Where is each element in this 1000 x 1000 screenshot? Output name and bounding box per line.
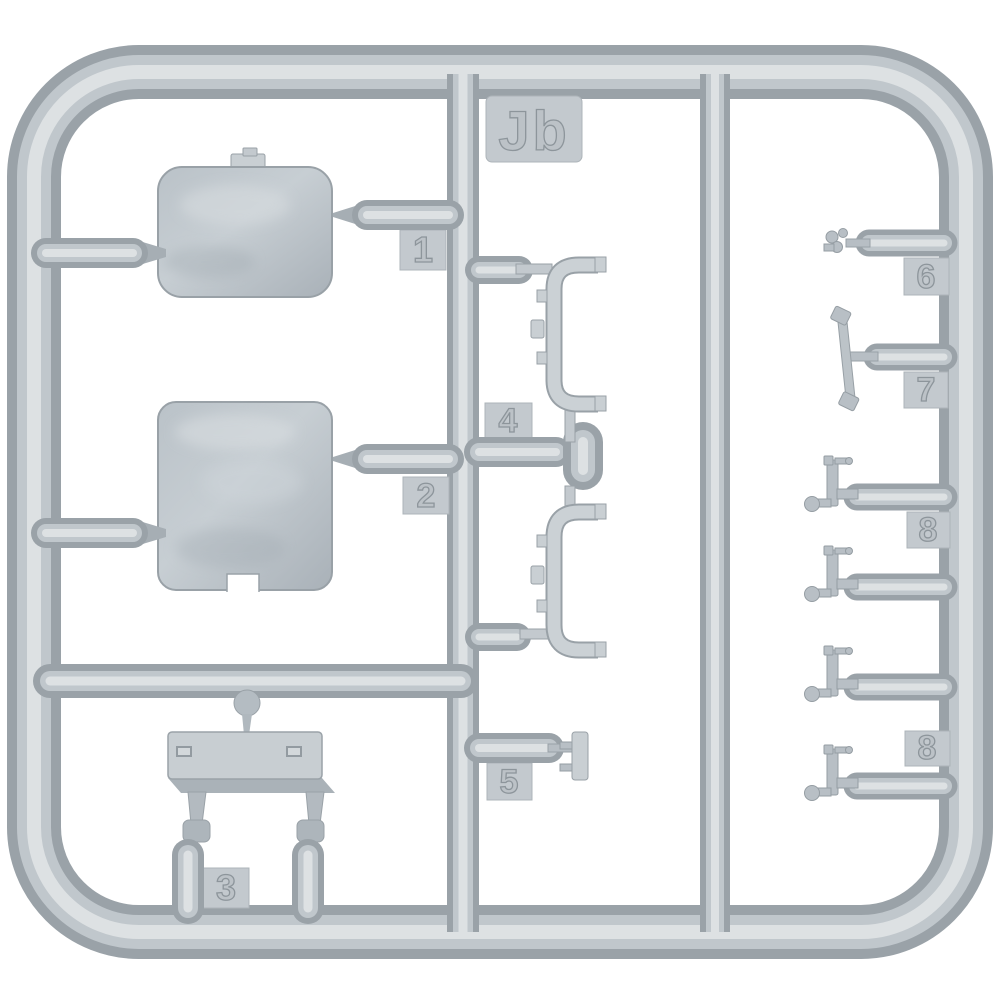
linkage-clevis	[830, 306, 851, 326]
tag-label: 5	[500, 763, 519, 801]
bracket-slot-inner	[178, 748, 190, 755]
fitting-foot	[824, 244, 834, 251]
part-tag-8b: 8	[905, 729, 950, 767]
bracket-nub	[537, 290, 547, 302]
c-bracket-upper	[531, 257, 606, 411]
tag-label: 7	[917, 371, 936, 409]
tag-label: 3	[216, 867, 236, 908]
tank-shadow	[165, 246, 255, 278]
tag-label: 8	[918, 729, 937, 767]
tank-notch	[227, 574, 259, 593]
part-6-fitting	[824, 229, 944, 253]
part-tag-3: 3	[203, 867, 249, 908]
part-tag-6: 6	[904, 258, 949, 296]
bracket-foot	[595, 257, 606, 272]
bracket-flange	[168, 778, 335, 793]
part-tag-8a: 8	[907, 511, 950, 549]
bracket-nub	[537, 352, 547, 364]
sprue-photo: Jb 1 2 3 4 5 6 7 8 8	[0, 0, 1000, 1000]
part-tag-1: 1	[400, 229, 446, 270]
leg-joint	[297, 820, 324, 842]
tag-label: 4	[499, 402, 518, 440]
sprue-svg: Jb 1 2 3 4 5 6 7 8 8	[0, 0, 1000, 1000]
bracket-foot	[595, 642, 606, 657]
bracket-nub	[537, 535, 547, 547]
bracket-nub	[537, 600, 547, 612]
tank-filler-tab-top	[243, 148, 257, 156]
fitting-arm	[846, 239, 870, 247]
part-1-tank	[46, 148, 449, 297]
tank-highlight	[180, 185, 290, 225]
tag-label: 2	[417, 477, 436, 515]
bracket-foot	[595, 504, 606, 519]
part-4-brackets	[479, 257, 606, 657]
fitting-plate	[572, 732, 588, 780]
tag-label: 6	[917, 258, 936, 296]
part-tag-7: 7	[904, 371, 948, 409]
gate-arm	[516, 264, 552, 274]
part-3-bracket	[168, 690, 335, 908]
tag-label: 8	[919, 511, 938, 549]
part-2-tank	[46, 402, 449, 593]
tag-label: 1	[413, 229, 433, 270]
gate-ball	[234, 690, 260, 716]
bracket-leg	[306, 792, 324, 824]
bracket-tab	[531, 566, 544, 584]
part-tag-2: 2	[403, 477, 449, 515]
sprue-code-label: Jb	[498, 99, 569, 162]
part-tag-4: 4	[485, 402, 532, 440]
linkage-clevis	[838, 391, 859, 411]
tank-highlight	[202, 460, 302, 504]
fitting-knob	[839, 229, 848, 238]
bracket-foot	[595, 396, 606, 411]
gate-stem	[565, 410, 575, 442]
bracket-slot-inner	[288, 748, 300, 755]
part-tag-5: 5	[487, 763, 532, 801]
leg-joint	[183, 820, 210, 842]
sprue-code-tag: Jb	[486, 96, 582, 162]
bracket-leg	[188, 792, 206, 824]
bracket-tab	[531, 320, 544, 338]
tank-highlight	[175, 414, 295, 450]
tank-shadow	[175, 528, 285, 568]
gate-arm	[850, 352, 878, 361]
